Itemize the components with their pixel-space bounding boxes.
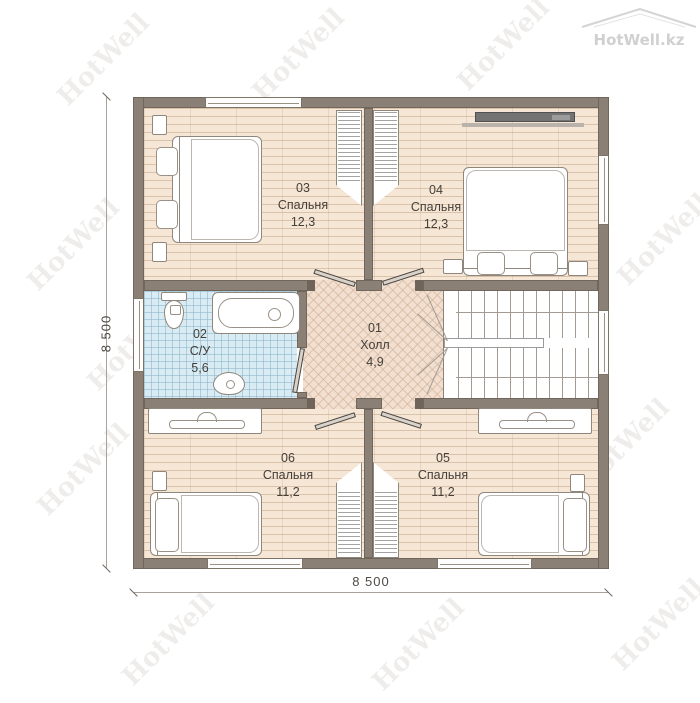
nightstand (152, 471, 167, 491)
door-jamb (307, 280, 315, 291)
room-label-03: 03 Спальня 12,3 (255, 180, 351, 231)
watermark-text: HotWell (32, 418, 136, 522)
wall-mid-upper-center (356, 280, 382, 291)
roof-icon (580, 6, 698, 28)
watermark-text: HotWell (117, 588, 221, 692)
wall-mid-upper-left (144, 280, 315, 291)
room-label-04: 04 Спальня 12,3 (388, 182, 484, 233)
watermark-text: HotWell (607, 573, 700, 677)
window-right-room04 (598, 155, 609, 225)
wardrobe-hatch (375, 492, 397, 556)
pillow (530, 252, 558, 275)
dresser-room05 (478, 408, 592, 434)
door-jamb (415, 280, 423, 291)
wardrobe-hatch (375, 112, 397, 182)
room-label-05: 05 Спальня 11,2 (395, 450, 491, 501)
wall-bedrooms-top-divider (364, 108, 373, 280)
wall-bathroom-right-lower (297, 392, 307, 398)
wardrobe-hatch (338, 112, 360, 182)
watermark-text: HotWell (367, 593, 471, 697)
room-area: 4,9 (327, 354, 423, 371)
window-bottom-room06 (207, 558, 303, 569)
dimension-label-bottom: 8 500 (341, 574, 401, 589)
room-number: 05 (395, 450, 491, 467)
stair-treads-upper (458, 291, 599, 338)
pillow (477, 252, 505, 275)
nightstand (570, 474, 585, 492)
outer-wall-bottom (133, 558, 609, 569)
dimension-label-left: 8 500 (99, 304, 114, 364)
room-area: 12,3 (255, 214, 351, 231)
room-number: 04 (388, 182, 484, 199)
window-left-bathroom (133, 298, 144, 372)
tv-stand-arc (197, 412, 217, 422)
blanket (191, 139, 259, 240)
nightstand (568, 261, 588, 276)
nightstand (152, 242, 167, 262)
room-name: Спальня (388, 199, 484, 216)
pillow (155, 498, 179, 552)
nightstand (443, 259, 463, 274)
staircase (443, 291, 599, 398)
sink-drain (226, 380, 235, 389)
room-label-01: 01 Холл 4,9 (327, 320, 423, 371)
watermark-text: HotWell (452, 0, 556, 97)
pillow (156, 200, 178, 229)
bathtub-drain (268, 308, 281, 321)
window-top-room03 (205, 97, 302, 108)
room-name: Спальня (395, 467, 491, 484)
wall-bedrooms-bottom-divider (364, 409, 373, 558)
watermark-text: HotWell (612, 188, 700, 292)
room-name: Холл (327, 337, 423, 354)
toilet-detail (170, 305, 181, 315)
room-area: 11,2 (240, 484, 336, 501)
stair-flight-edge (456, 377, 599, 378)
stair-treads-lower (458, 348, 599, 398)
dimension-line-bottom (133, 592, 609, 593)
logo-text: HotWell.kz (580, 31, 698, 49)
stair-flight-edge (456, 312, 599, 313)
pillow (563, 498, 587, 552)
room-area: 5,6 (152, 360, 248, 377)
room-number: 03 (255, 180, 351, 197)
room-number: 02 (152, 326, 248, 343)
room-name: Спальня (255, 197, 351, 214)
wall-mid-lower-center (356, 398, 382, 409)
blanket (181, 495, 259, 553)
double-bed-room03 (172, 136, 262, 243)
wardrobe-hatch (338, 492, 360, 556)
blanket (481, 495, 559, 553)
door-jamb (415, 398, 423, 409)
floor-plan-canvas: HotWell HotWell HotWell HotWell HotWell … (0, 0, 700, 703)
tv-room04 (475, 112, 575, 122)
bathtub-inner (218, 298, 294, 328)
hotwell-logo: HotWell.kz (580, 6, 698, 49)
tv-shelf (462, 123, 584, 127)
room-area: 11,2 (395, 484, 491, 501)
nightstand (152, 115, 167, 135)
window-right-stairs (598, 310, 609, 375)
room-label-02: 02 С/У 5,6 (152, 326, 248, 377)
wall-mid-upper-right (423, 280, 598, 291)
tv-stand-arc (527, 412, 547, 422)
room-name: С/У (152, 343, 248, 360)
watermark-text: HotWell (22, 193, 126, 297)
room-number: 01 (327, 320, 423, 337)
stair-stringer (444, 338, 544, 348)
window-bottom-room05 (437, 558, 532, 569)
dresser-room06 (148, 408, 262, 434)
pillow (156, 147, 178, 176)
room-area: 12,3 (388, 216, 484, 233)
tv-detail (552, 115, 570, 120)
room-number: 06 (240, 450, 336, 467)
room-name: Спальня (240, 467, 336, 484)
room-label-06: 06 Спальня 11,2 (240, 450, 336, 501)
watermark-text: HotWell (247, 3, 351, 107)
door-jamb (307, 398, 315, 409)
